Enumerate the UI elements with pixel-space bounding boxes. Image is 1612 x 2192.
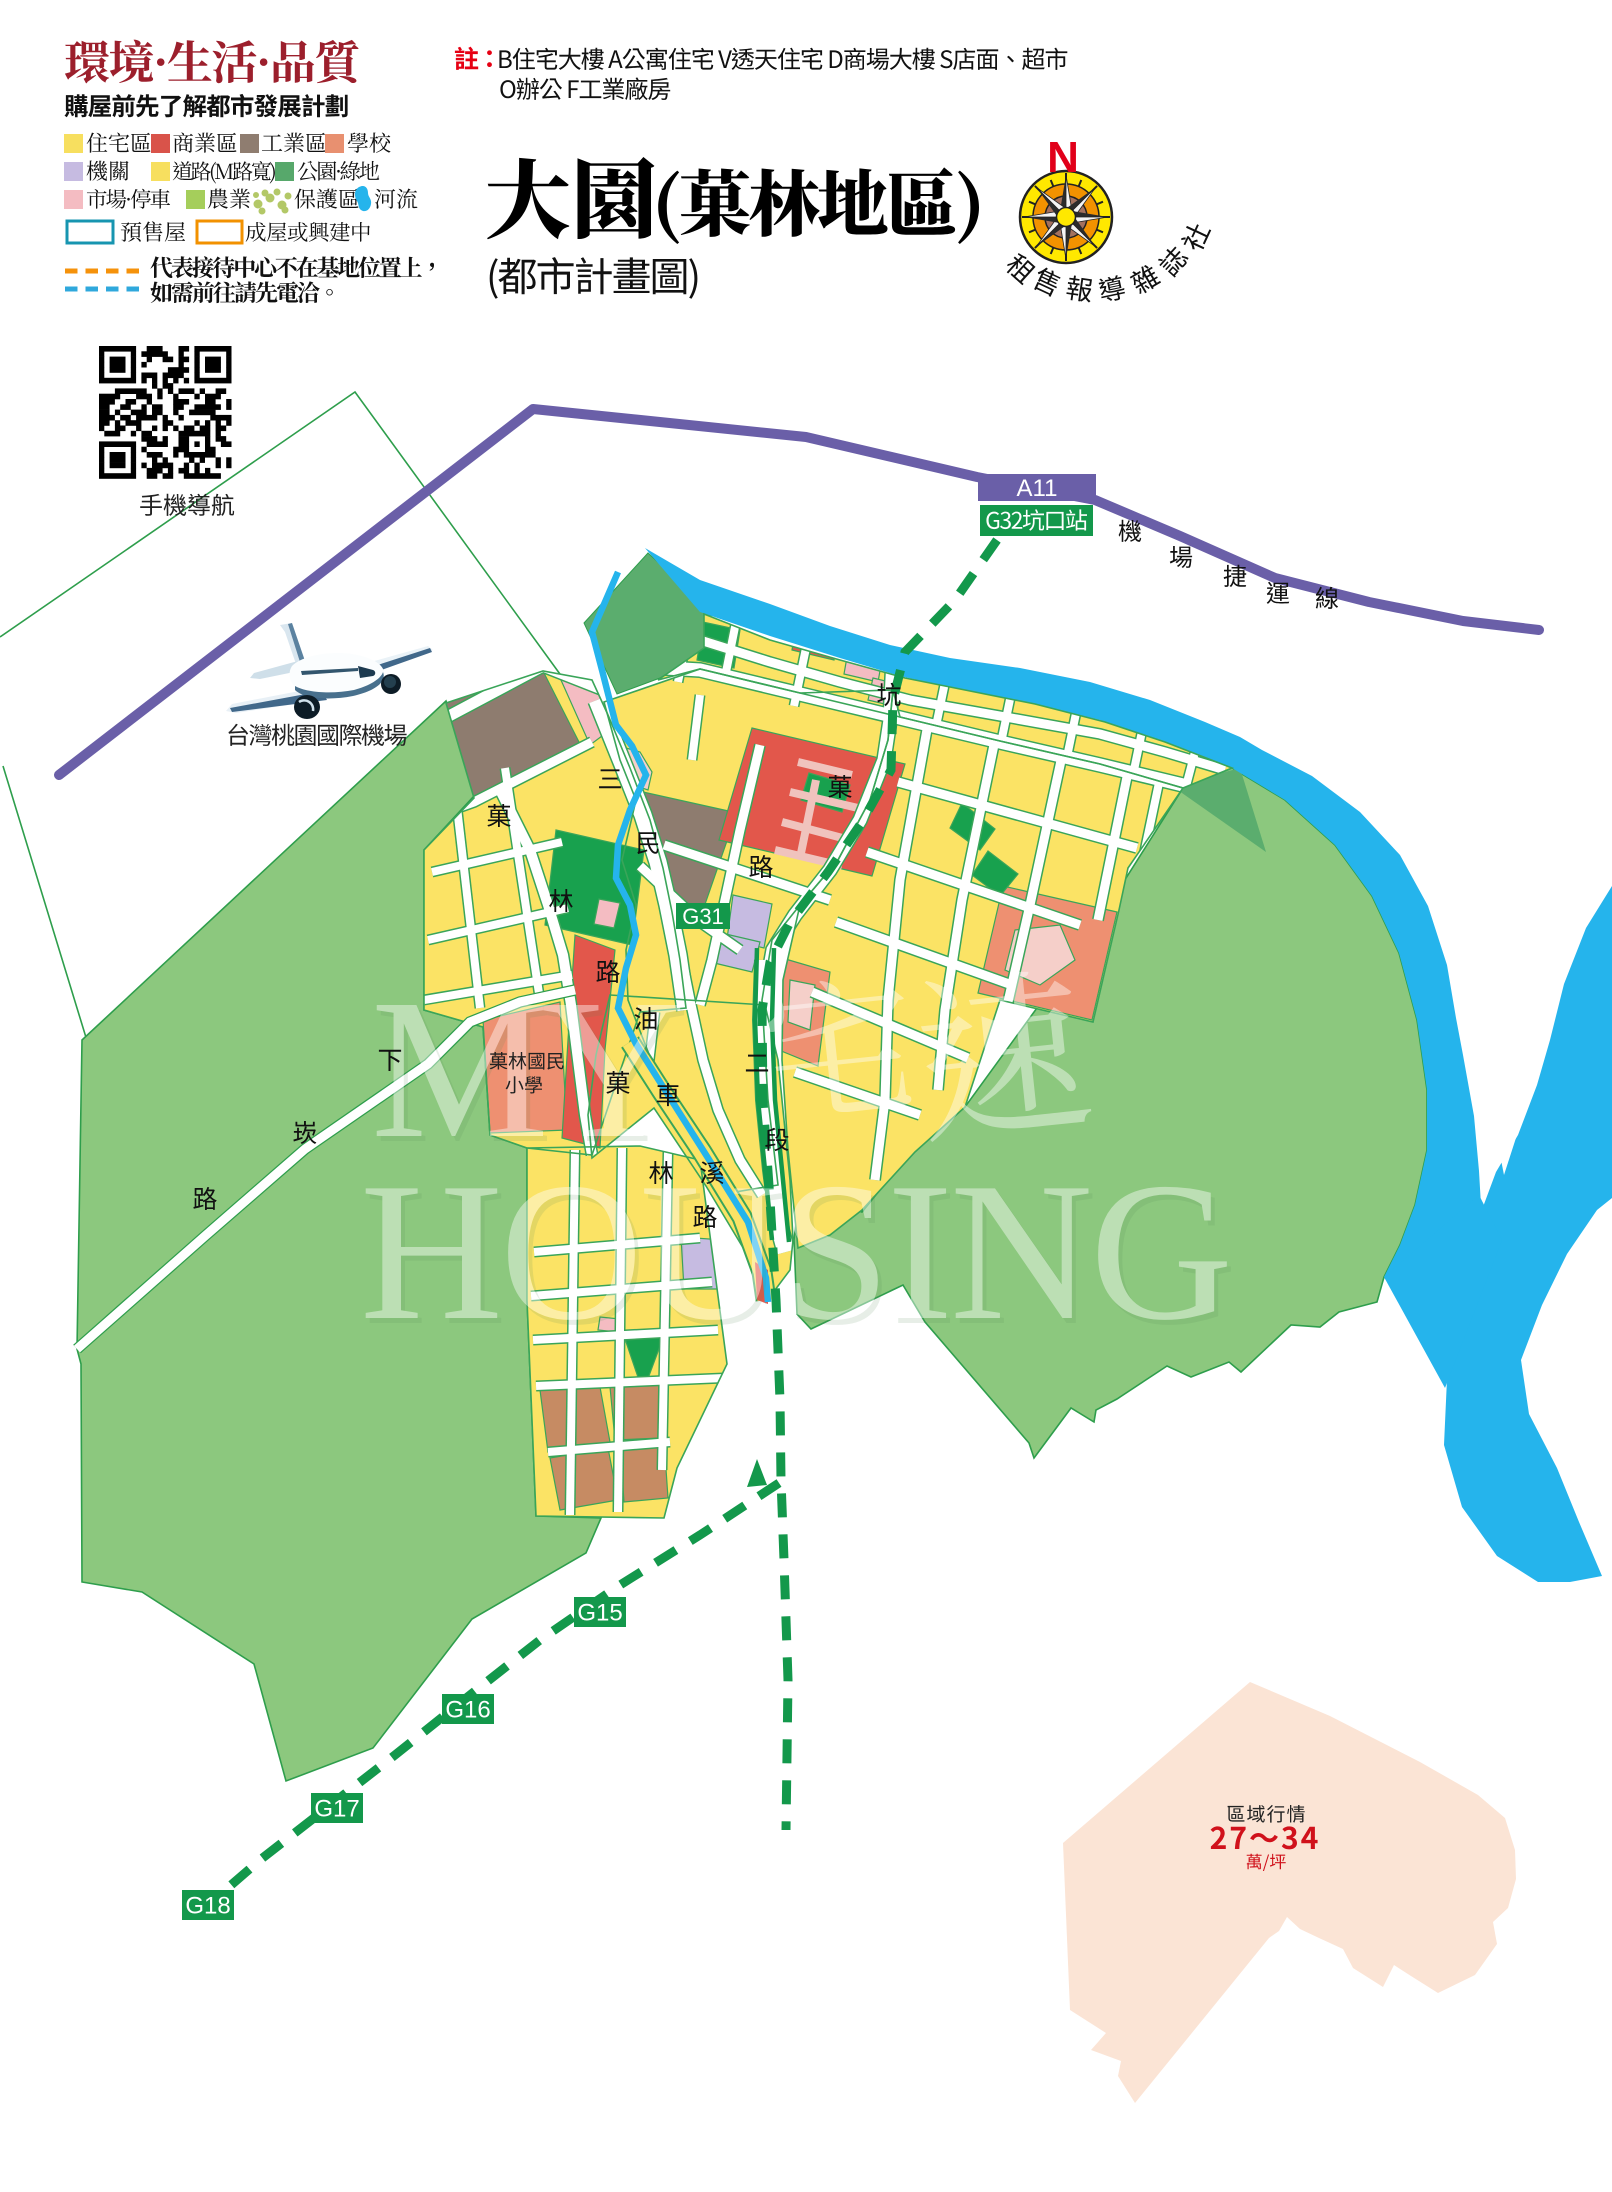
- svg-text:G15: G15: [577, 1600, 622, 1627]
- svg-text:N: N: [1047, 133, 1079, 182]
- svg-text:G17: G17: [314, 1796, 359, 1823]
- svg-text:G18: G18: [185, 1893, 230, 1920]
- svg-text:HOUSING: HOUSING: [360, 1142, 1230, 1361]
- svg-text:A11: A11: [1017, 475, 1058, 502]
- svg-text:G16: G16: [445, 1697, 490, 1724]
- svg-text:G31: G31: [682, 904, 724, 929]
